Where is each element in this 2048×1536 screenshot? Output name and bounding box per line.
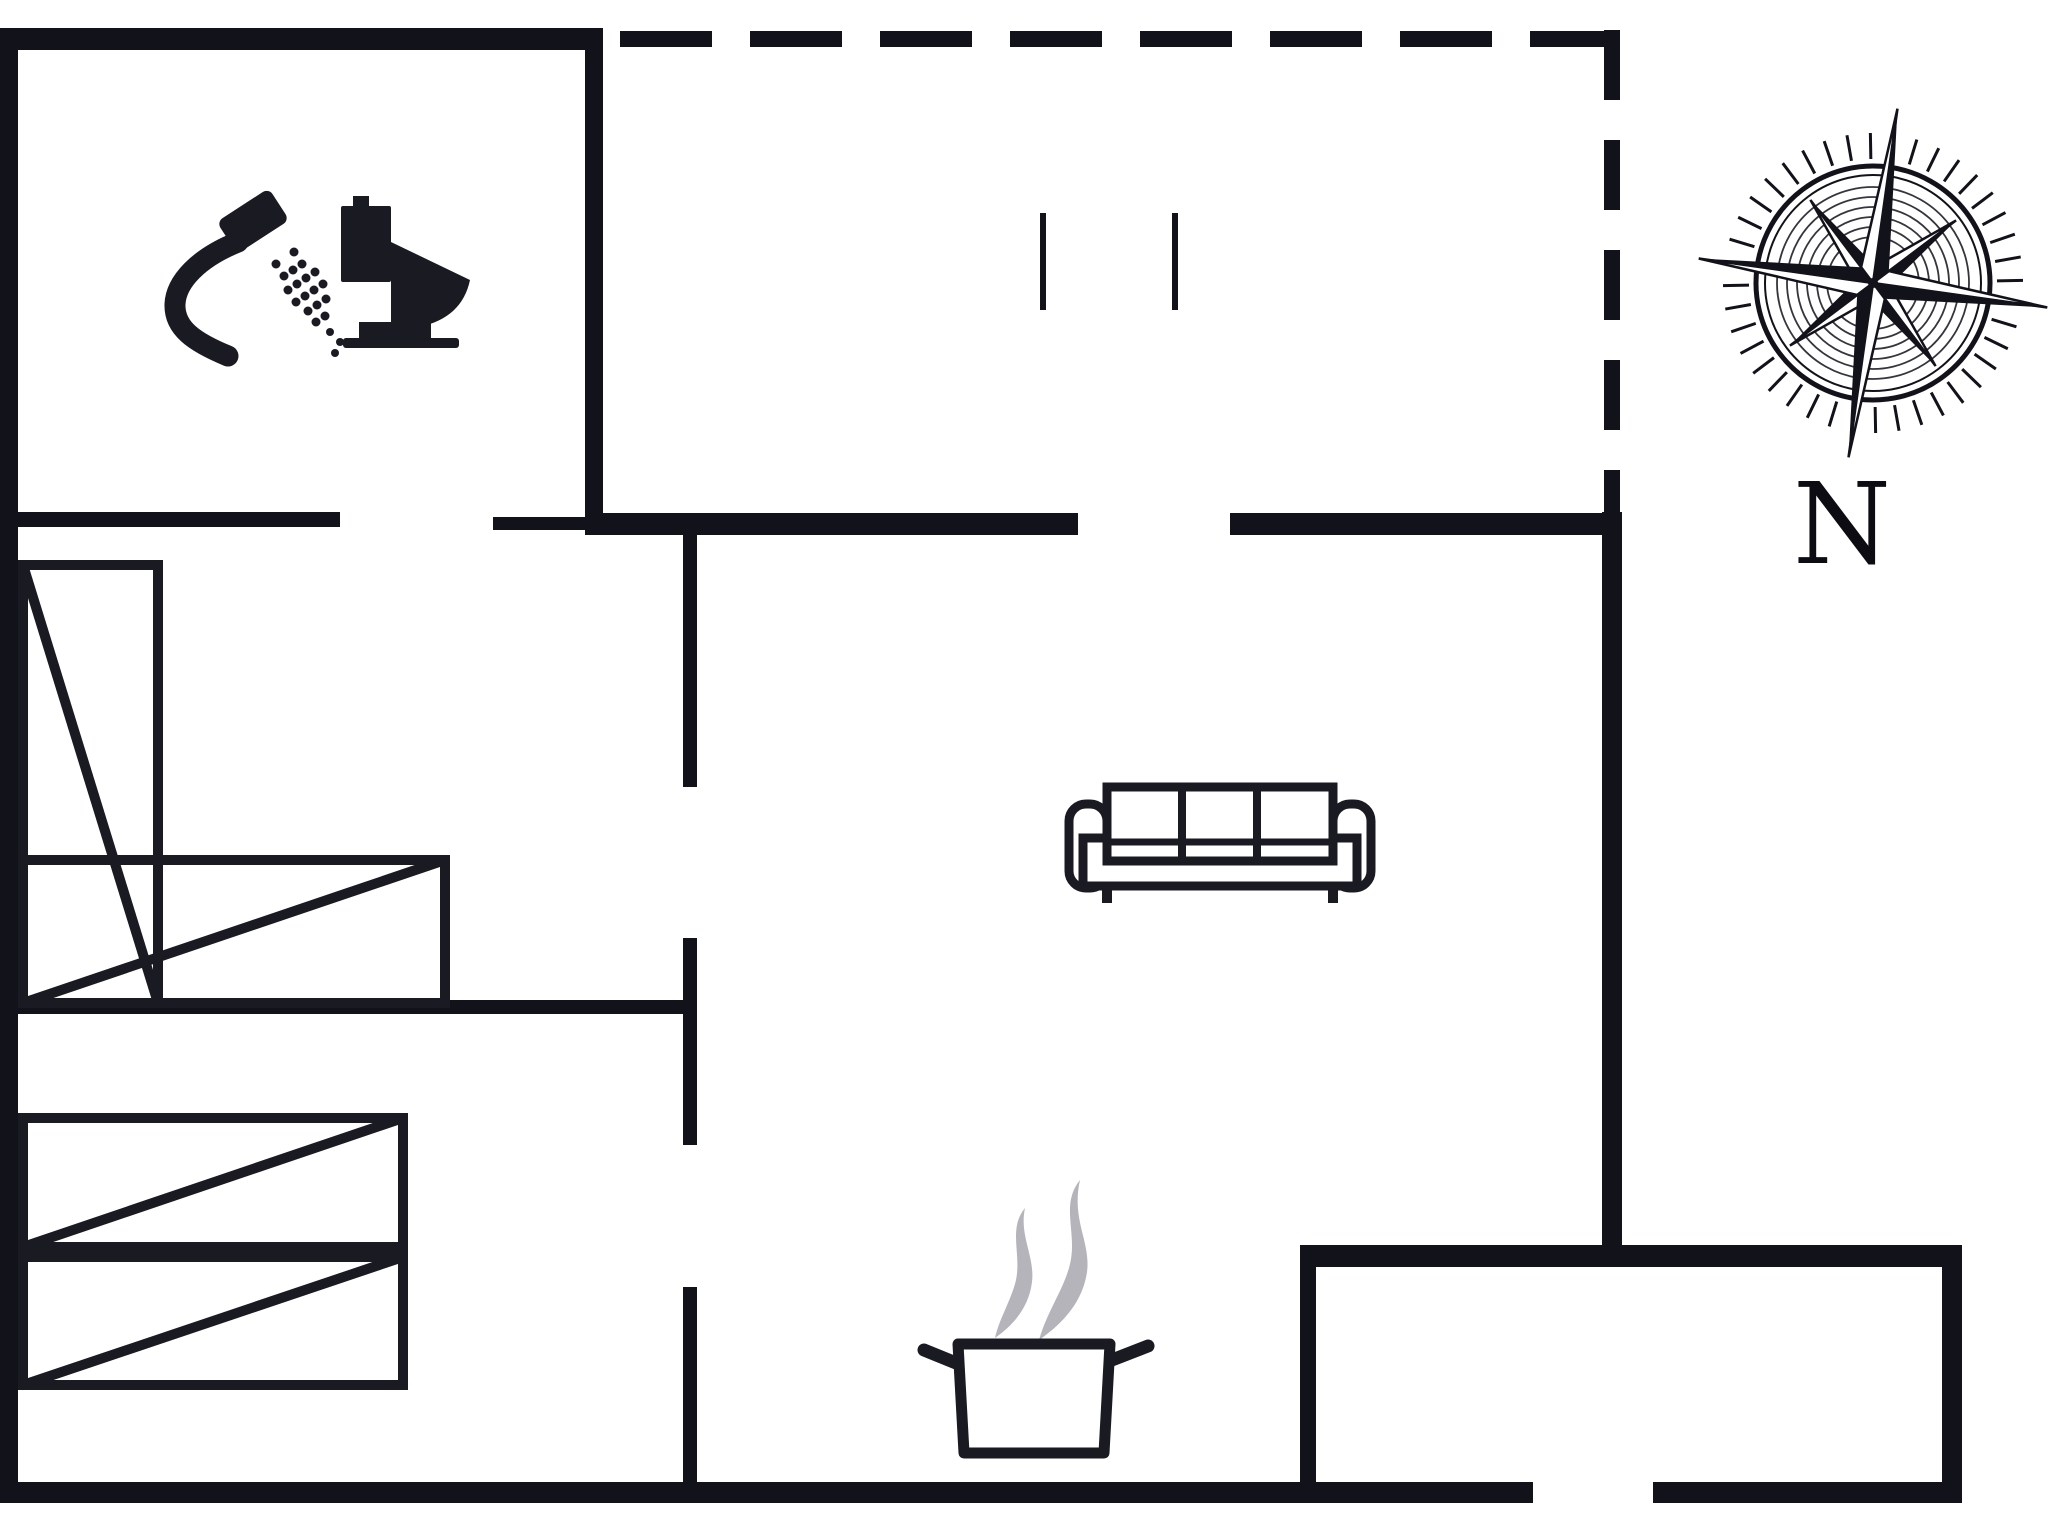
toilet-icon <box>341 196 470 348</box>
beds <box>23 565 445 1385</box>
bed-1 <box>23 565 158 1003</box>
compass-tick <box>1995 254 2021 265</box>
window-marker-2 <box>1172 213 1178 310</box>
floor-plan-svg: N <box>0 0 2048 1536</box>
sofa-backrest <box>1107 787 1333 861</box>
compass-tick <box>1928 392 1946 415</box>
bed-4 <box>23 1257 403 1385</box>
wall-bathroom-bottom-left <box>0 512 340 527</box>
wall-annex-top <box>1300 1245 1962 1267</box>
compass-tick <box>1972 190 1993 211</box>
bed-2 <box>23 860 445 1003</box>
bed-3 <box>23 1118 403 1247</box>
compass-tick <box>1927 147 1938 173</box>
steam-icon <box>995 1180 1088 1340</box>
wall-bathroom-right <box>585 28 603 533</box>
wall-corridor-mid <box>683 938 697 1145</box>
compass-tick <box>1960 369 1983 387</box>
wall-right <box>1602 512 1622 1267</box>
compass-tick <box>1990 231 2015 246</box>
shower-icon <box>175 188 344 357</box>
compass-tick <box>1731 320 1756 335</box>
compass-tick <box>1944 158 1959 183</box>
compass-tick <box>1872 407 1880 433</box>
compass-tick <box>1725 301 1751 312</box>
compass-tick <box>1959 173 1977 196</box>
compass-tick <box>1991 319 2017 327</box>
compass-tick <box>1769 370 1787 393</box>
compass-rose <box>1674 84 2048 482</box>
wall-top <box>0 28 603 50</box>
compass-tick <box>1800 151 1818 174</box>
compass-tick <box>1945 382 1966 403</box>
compass-tick <box>1741 338 1764 356</box>
compass-tick <box>1910 400 1925 425</box>
wall-bathroom-bottom-right <box>493 517 585 530</box>
compass-tick <box>1844 135 1855 161</box>
wall-hall-bottom-right <box>1230 513 1622 535</box>
north-label-group: N <box>1793 460 1891 590</box>
wall-annex-right <box>1942 1267 1962 1503</box>
wall-corridor-bottom <box>683 1287 697 1487</box>
north-label: N <box>1793 460 1891 590</box>
wall-corridor-top <box>683 533 697 787</box>
compass-tick <box>1787 383 1802 408</box>
wall-bottom-right <box>1653 1482 1962 1503</box>
wall-left <box>0 28 18 1503</box>
shower-spray-dots <box>272 248 345 358</box>
compass-tick <box>1997 277 2023 285</box>
sofa <box>1069 787 1371 903</box>
compass-tick <box>1723 282 1749 290</box>
cooking-pot-icon <box>924 1344 1148 1453</box>
compass-tick <box>1753 355 1774 376</box>
window-marker-1 <box>1040 213 1046 310</box>
compass-tick <box>1807 393 1818 419</box>
compass-tick <box>1867 133 1875 159</box>
compass-tick <box>1821 141 1836 166</box>
compass-tick <box>1829 401 1837 427</box>
walls-dashed <box>620 30 1612 512</box>
compass-tick <box>1973 354 1998 369</box>
compass-tick <box>1737 217 1763 228</box>
compass-tick <box>1983 337 2009 348</box>
compass-tick <box>1729 239 1755 247</box>
wall-hall-bottom-left <box>585 513 1078 535</box>
compass-tick <box>1748 197 1773 212</box>
wall-kitchen-right <box>1300 1245 1316 1503</box>
compass-tick <box>1780 163 1801 184</box>
compass-tick <box>1982 210 2005 228</box>
compass-tick <box>1891 405 1902 431</box>
compass-tick <box>1909 139 1917 165</box>
compass-tick <box>1763 179 1786 197</box>
